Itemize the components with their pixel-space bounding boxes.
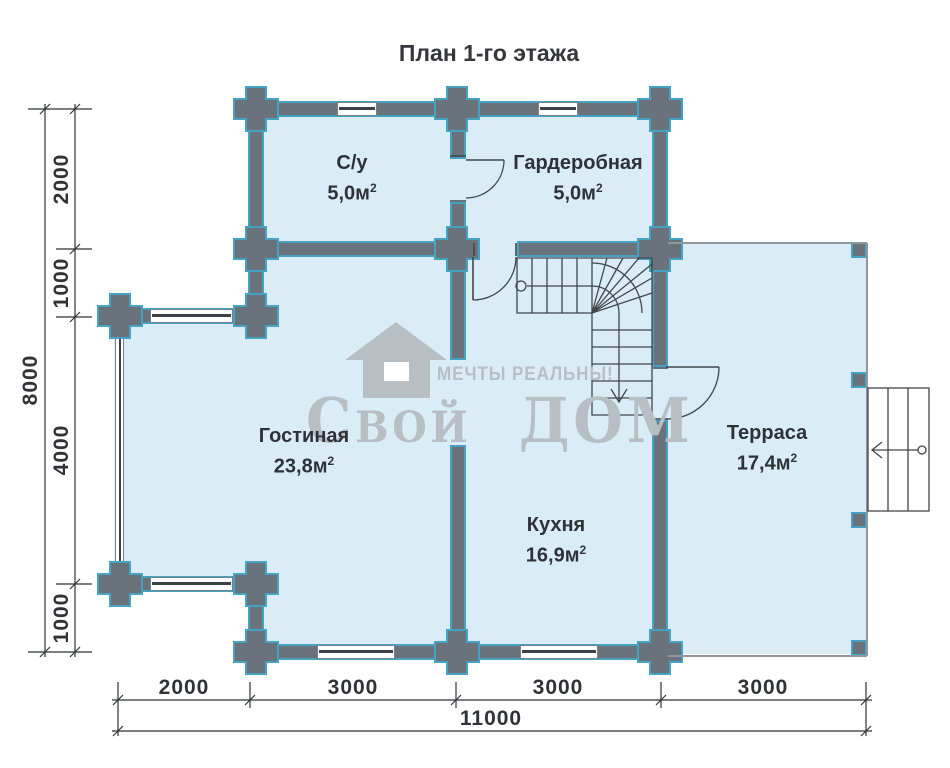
dim-left-seg-0: 2000 bbox=[50, 154, 74, 205]
room-label-wardrobe: Гардеробная 5,0м2 bbox=[513, 151, 642, 207]
room-label-kitchen: Кухня 16,9м2 bbox=[526, 513, 586, 569]
room-label-terrace: Терраса 17,4м2 bbox=[727, 421, 807, 477]
entry-steps bbox=[868, 388, 929, 511]
room-label-living: Гостиная 23,8м2 bbox=[259, 424, 349, 480]
dim-left-seg-3: 1000 bbox=[50, 593, 74, 644]
dim-left-seg-1: 1000 bbox=[50, 258, 74, 309]
dim-bottom-seg-1: 3000 bbox=[328, 676, 379, 700]
dim-bottom-seg-3: 3000 bbox=[738, 676, 789, 700]
dim-bottom-seg-2: 3000 bbox=[533, 676, 584, 700]
floor-plan: МЕЧТЫ РЕАЛЬНЫ! Свой ДОМ План 1-го этажа … bbox=[0, 0, 950, 768]
watermark-slogan: МЕЧТЫ РЕАЛЬНЫ! bbox=[437, 364, 614, 386]
door-bathroom bbox=[450, 156, 504, 201]
dim-bottom-total: 11000 bbox=[460, 707, 522, 731]
dim-left-seg-2: 4000 bbox=[50, 425, 74, 476]
page-title: План 1-го этажа bbox=[399, 40, 579, 67]
room-label-bathroom: С/у 5,0м2 bbox=[327, 151, 376, 207]
dim-left-total: 8000 bbox=[19, 355, 43, 406]
dim-bottom-seg-0: 2000 bbox=[159, 676, 210, 700]
watermark-brand: Свой ДОМ bbox=[306, 390, 693, 452]
